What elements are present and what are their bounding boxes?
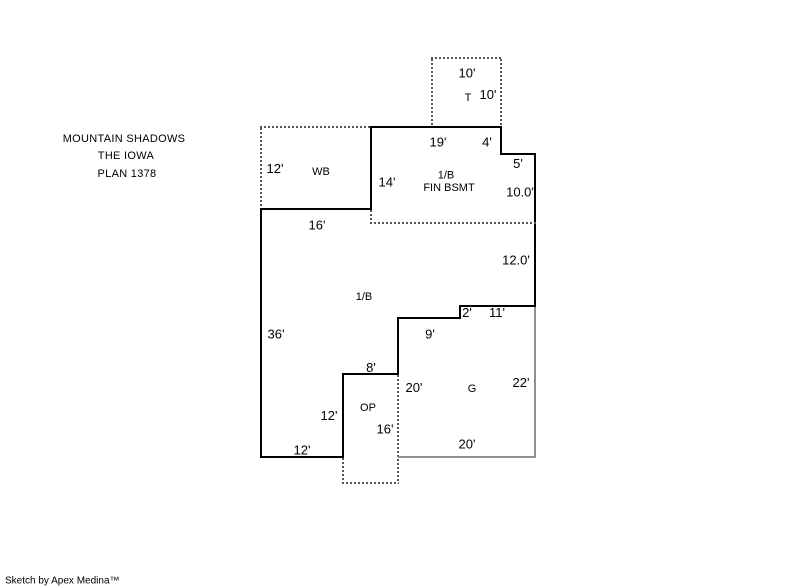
svg-text:36': 36'	[268, 326, 285, 341]
svg-text:WB: WB	[312, 166, 330, 178]
svg-text:20': 20'	[459, 437, 476, 452]
svg-text:1/B: 1/B	[438, 170, 455, 182]
svg-text:16': 16'	[377, 422, 394, 437]
svg-text:12.0': 12.0'	[502, 253, 530, 268]
svg-text:1/B: 1/B	[356, 291, 373, 303]
svg-text:12': 12'	[267, 161, 284, 176]
svg-text:PLAN 1378: PLAN 1378	[98, 168, 157, 180]
svg-text:T: T	[465, 92, 472, 104]
svg-text:5': 5'	[513, 156, 523, 171]
svg-text:FIN BSMT: FIN BSMT	[423, 182, 475, 194]
svg-text:12': 12'	[321, 408, 338, 423]
svg-text:OP: OP	[360, 402, 376, 414]
svg-text:14': 14'	[379, 175, 396, 190]
svg-text:2': 2'	[462, 305, 472, 320]
svg-text:Sketch by Apex Medina™: Sketch by Apex Medina™	[5, 576, 120, 587]
svg-text:22': 22'	[513, 375, 530, 390]
svg-text:16': 16'	[309, 217, 326, 232]
svg-text:4': 4'	[482, 134, 492, 149]
svg-text:THE IOWA: THE IOWA	[98, 150, 155, 162]
svg-text:9': 9'	[425, 326, 435, 341]
svg-text:MOUNTAIN SHADOWS: MOUNTAIN SHADOWS	[63, 133, 186, 145]
svg-text:11': 11'	[489, 305, 505, 320]
svg-text:10.0': 10.0'	[506, 185, 534, 200]
svg-text:10': 10'	[480, 87, 497, 102]
svg-text:19': 19'	[430, 135, 447, 150]
svg-text:G: G	[468, 383, 477, 395]
svg-text:12': 12'	[294, 443, 311, 458]
svg-text:20': 20'	[406, 380, 423, 395]
svg-text:8': 8'	[366, 360, 376, 375]
svg-text:10': 10'	[459, 66, 476, 81]
